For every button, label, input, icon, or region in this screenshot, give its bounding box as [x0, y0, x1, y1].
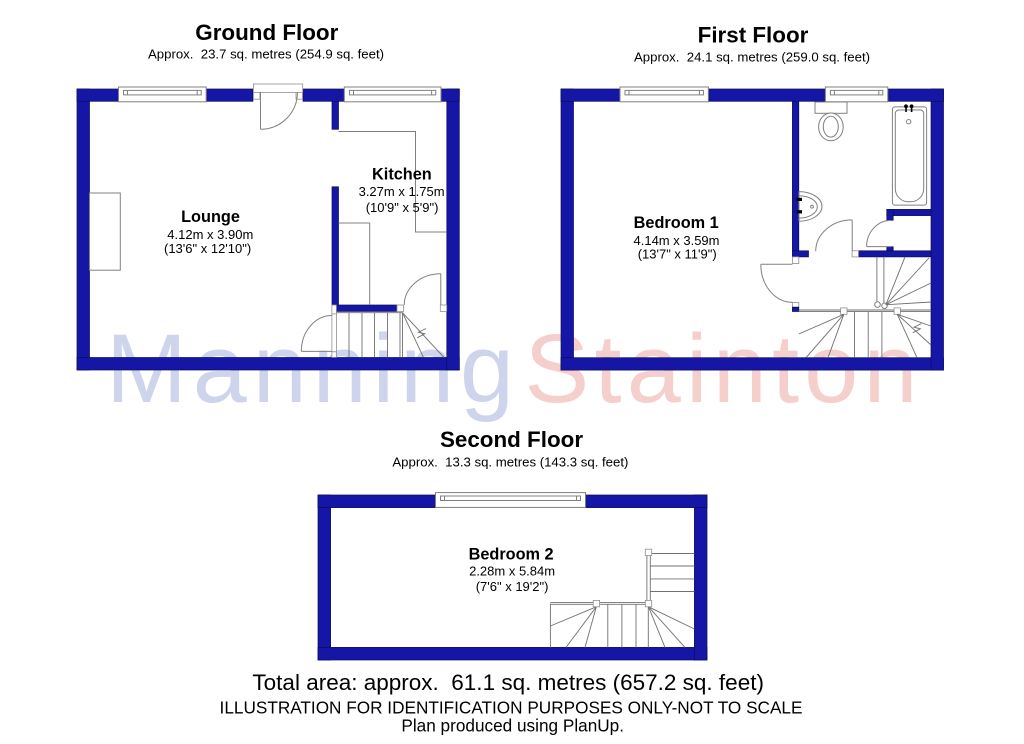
svg-text:(7'6" x 19'2"): (7'6" x 19'2") [476, 579, 549, 594]
svg-text:Lounge: Lounge [181, 208, 240, 226]
svg-text:4.14m x 3.59m: 4.14m x 3.59m [634, 233, 720, 248]
svg-text:Approx. 24.1 sq. metres (259.: Approx. 24.1 sq. metres (259.0 sq. feet) [634, 50, 870, 65]
svg-text:Plan produced using PlanUp.: Plan produced using PlanUp. [401, 716, 624, 736]
svg-text:(13'6" x 12'10"): (13'6" x 12'10") [164, 241, 251, 256]
svg-text:3.27m x 1.75m: 3.27m x 1.75m [359, 184, 445, 199]
svg-text:Second Floor: Second Floor [440, 427, 583, 452]
svg-text:Kitchen: Kitchen [372, 165, 432, 183]
svg-text:Bedroom 1: Bedroom 1 [634, 214, 719, 232]
svg-text:(10'9" x 5'9"): (10'9" x 5'9") [366, 200, 439, 215]
svg-text:ILLUSTRATION FOR IDENTIFICATIO: ILLUSTRATION FOR IDENTIFICATION PURPOSES… [220, 698, 803, 718]
svg-text:(13'7" x 11'9"): (13'7" x 11'9") [638, 247, 717, 262]
svg-text:Bedroom 2: Bedroom 2 [469, 545, 554, 563]
svg-text:First Floor: First Floor [698, 23, 809, 48]
svg-text:Ground Floor: Ground Floor [195, 20, 338, 45]
svg-text:2.28m x 5.84m: 2.28m x 5.84m [469, 563, 555, 578]
svg-text:Approx. 13.3 sq. metres (143.: Approx. 13.3 sq. metres (143.3 sq. feet) [392, 455, 628, 470]
svg-text:Total area: approx. 61.1 sq.: Total area: approx. 61.1 sq. metres (657… [252, 670, 764, 695]
svg-text:4.12m x 3.90m: 4.12m x 3.90m [167, 227, 253, 242]
svg-text:Approx. 23.7 sq. metres (254.: Approx. 23.7 sq. metres (254.9 sq. feet) [148, 47, 384, 62]
